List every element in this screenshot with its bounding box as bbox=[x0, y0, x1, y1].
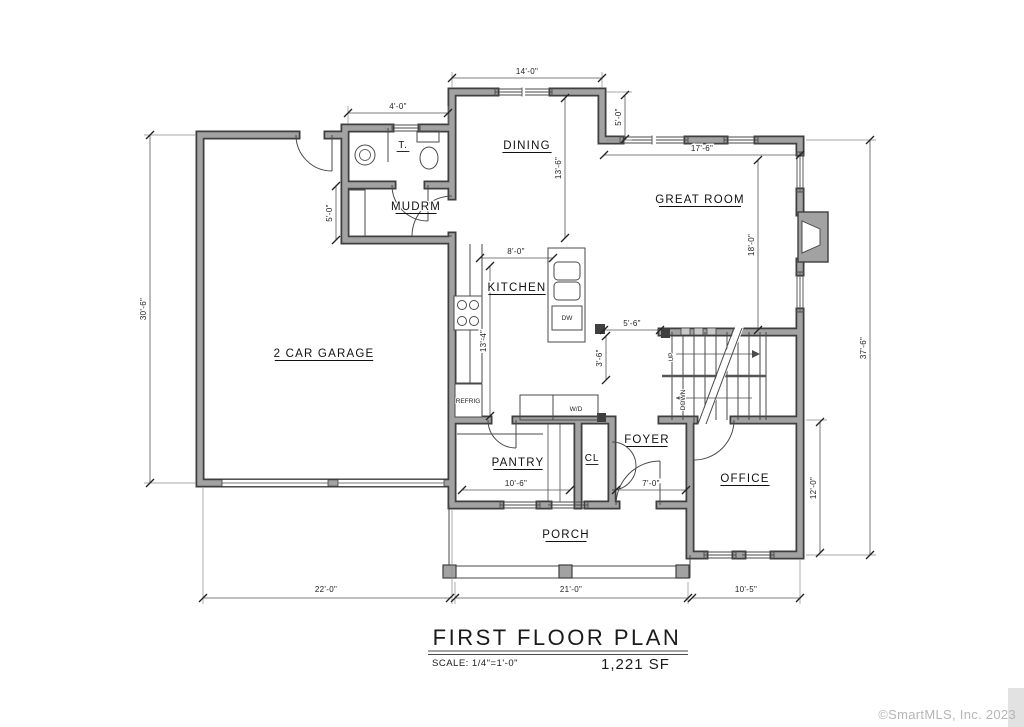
stair-baluster bbox=[694, 328, 703, 335]
toilet-tank bbox=[417, 131, 439, 142]
dimension-label: 12'-0" bbox=[809, 477, 818, 499]
columns bbox=[595, 324, 606, 422]
room-label-porch: PORCH bbox=[542, 529, 590, 541]
lavatory-sink bbox=[355, 145, 375, 165]
dimension-label: 14'-0" bbox=[516, 67, 538, 76]
toilet-bowl bbox=[420, 147, 438, 169]
room-label-kitchen: KITCHEN bbox=[488, 282, 547, 294]
dimension-label: 5'-6" bbox=[623, 319, 640, 328]
dimension-label: 7'-0" bbox=[642, 479, 659, 488]
room-label-2-car-garage: 2 CAR GARAGE bbox=[274, 348, 375, 360]
room-label-dining: DINING bbox=[503, 140, 550, 152]
porch-post bbox=[676, 565, 689, 578]
newel-post bbox=[661, 329, 670, 338]
room-label-mudrm: MUDRM bbox=[391, 201, 441, 213]
up-arrow bbox=[752, 350, 760, 358]
stair-baluster bbox=[681, 328, 690, 335]
dimension-label: 8'-0" bbox=[507, 247, 524, 256]
plan-scale: SCALE: 1/4"=1'-0" bbox=[432, 658, 518, 669]
dimension-label: 13'-4" bbox=[479, 330, 488, 352]
plan-area: 1,221 SF bbox=[601, 656, 670, 673]
fixture-label-up: UP bbox=[668, 352, 675, 361]
fireplace bbox=[798, 212, 828, 262]
dimension-label: 10'-5" bbox=[735, 585, 757, 594]
room-label-foyer: FOYER bbox=[624, 434, 670, 446]
stairs bbox=[661, 326, 766, 426]
dimension-label: 22'-0" bbox=[315, 585, 337, 594]
dimension-label: 10'-6" bbox=[505, 479, 527, 488]
watermark: ©SmartMLS, Inc. 2023 bbox=[878, 707, 1016, 722]
stair-baluster bbox=[707, 328, 716, 335]
room-label-cl: CL bbox=[585, 453, 599, 464]
range bbox=[454, 296, 482, 330]
floor-plan-drawing: 14'-0"4'-0"5'-0"17'-6"18'-0"13'-6"5'-0"3… bbox=[0, 0, 1024, 727]
title-block: FIRST FLOOR PLAN SCALE: 1/4"=1'-0" 1,221… bbox=[428, 625, 688, 673]
plan-title: FIRST FLOOR PLAN bbox=[433, 625, 682, 650]
dimension-label: 13'-6" bbox=[554, 157, 563, 179]
fixture-label-down: DOWN bbox=[680, 389, 687, 410]
fixture-label-refrig: REFRIG bbox=[456, 398, 481, 405]
porch-post bbox=[559, 565, 572, 578]
room-label-office: OFFICE bbox=[720, 473, 769, 485]
room-label-pantry: PANTRY bbox=[492, 457, 545, 469]
porch-post bbox=[443, 565, 456, 578]
dimension-label: 21'-0" bbox=[560, 585, 582, 594]
floor-plan-page: 14'-0"4'-0"5'-0"17'-6"18'-0"13'-6"5'-0"3… bbox=[0, 0, 1024, 727]
dimension-label: 17'-6" bbox=[691, 144, 713, 153]
dimension-label: 5'-0" bbox=[614, 108, 623, 125]
dimension-label: 37'-6" bbox=[859, 337, 868, 359]
room-label-great-room: GREAT ROOM bbox=[655, 194, 745, 206]
dimension-label: 5'-0" bbox=[325, 204, 334, 221]
dimension-label: 4'-0" bbox=[389, 102, 406, 111]
title-underline bbox=[428, 651, 688, 655]
fixture-label-w-d: W/D bbox=[570, 406, 583, 413]
dimension-label: 3'-6" bbox=[595, 349, 604, 366]
mudroom-bench bbox=[349, 190, 365, 236]
fixture-label-dw: DW bbox=[562, 315, 574, 322]
room-label-t: T. bbox=[398, 140, 407, 151]
dimension-label: 18'-0" bbox=[747, 234, 756, 256]
dimension-label: 30'-6" bbox=[139, 298, 148, 320]
column-post bbox=[595, 324, 605, 334]
